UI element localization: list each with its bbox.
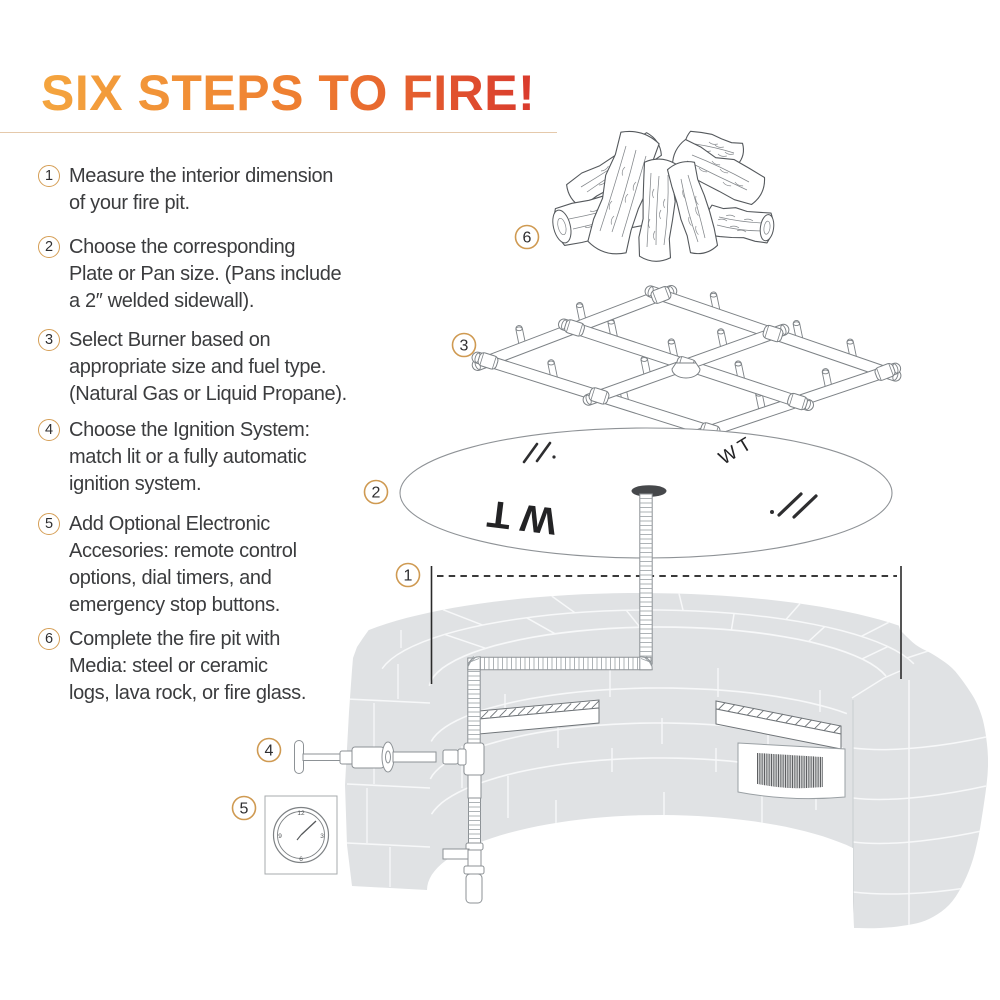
svg-text:3: 3 bbox=[460, 338, 469, 355]
svg-text:6: 6 bbox=[299, 856, 303, 863]
svg-text:1: 1 bbox=[404, 568, 413, 585]
svg-text:4: 4 bbox=[265, 743, 274, 760]
svg-text:2: 2 bbox=[372, 485, 381, 502]
svg-text:5: 5 bbox=[240, 801, 249, 818]
svg-text:9: 9 bbox=[278, 833, 282, 840]
svg-text:6: 6 bbox=[523, 230, 532, 247]
svg-text:3: 3 bbox=[320, 833, 324, 840]
svg-text:12: 12 bbox=[297, 810, 305, 817]
